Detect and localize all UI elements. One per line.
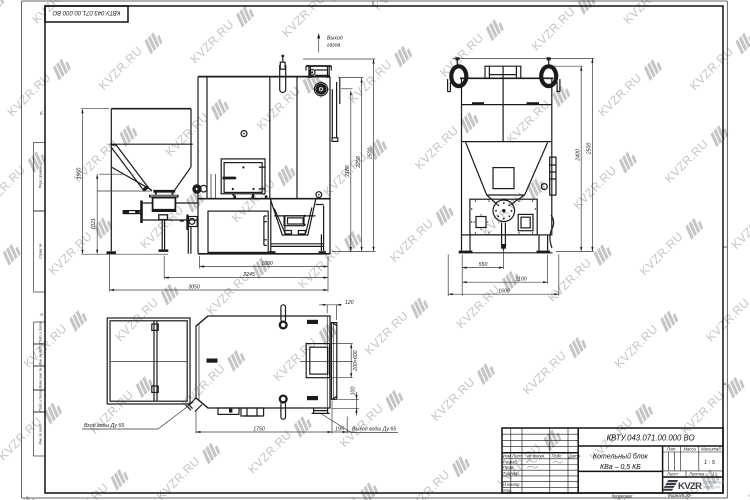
svg-text:KVZR.RU: KVZR.RU: [312, 494, 361, 500]
svg-text:Масштаб: Масштаб: [701, 447, 721, 452]
svg-text:100: 100: [351, 387, 357, 396]
svg-text:KVZR.RU: KVZR.RU: [678, 388, 727, 437]
svg-text:2245: 2245: [242, 272, 255, 278]
svg-text:KVZR.RU: KVZR.RU: [0, 163, 28, 212]
svg-text:KVZR.RU: KVZR.RU: [728, 203, 750, 252]
svg-text:КВТУ.043.071.00.000 ВО: КВТУ.043.071.00.000 ВО: [607, 433, 695, 442]
svg-text:KVZR.RU: KVZR.RU: [412, 123, 461, 172]
svg-text:KVZR.RU: KVZR.RU: [163, 110, 212, 159]
svg-text:KVZR.RU: KVZR.RU: [745, 454, 750, 500]
svg-text:Вход воды Ду 65: Вход воды Ду 65: [84, 423, 124, 429]
svg-text:195: 195: [335, 426, 344, 432]
svg-text:Масса: Масса: [684, 447, 697, 452]
svg-text:КВа – 0,5 КБ: КВа – 0,5 КБ: [600, 464, 641, 471]
svg-text:KVZR.RU: KVZR.RU: [346, 57, 395, 106]
svg-text:Подп. и дата: Подп. и дата: [38, 322, 42, 343]
svg-text:KVZR.RU: KVZR.RU: [403, 467, 452, 500]
svg-text:KVZR.RU: KVZR.RU: [570, 163, 619, 212]
svg-text:KVZR.RU: KVZR.RU: [87, 388, 136, 437]
svg-text:А: А: [723, 382, 727, 386]
svg-text:Разраб.: Разраб.: [503, 459, 518, 464]
svg-text:Н.контр.: Н.контр.: [503, 482, 521, 487]
svg-text:Инв. № дубл.: Инв. № дубл.: [38, 345, 42, 366]
svg-text:KVZR.RU: KVZR.RU: [621, 0, 670, 27]
svg-text:KVZR.RU: KVZR.RU: [96, 44, 145, 93]
svg-text:KVZR.RU: KVZR.RU: [371, 0, 420, 14]
svg-text:200×600: 200×600: [353, 350, 359, 371]
svg-text:KVZR.RU: KVZR.RU: [612, 322, 661, 371]
svg-text:KVZR.RU: KVZR.RU: [387, 216, 436, 265]
svg-text:2186: 2186: [345, 165, 351, 178]
svg-text:1021: 1021: [91, 218, 97, 230]
svg-text:KVZR.RU: KVZR.RU: [637, 229, 686, 278]
svg-text:КУЗНЕЧНЫЙ: КУЗНЕЧНЫЙ: [703, 481, 725, 485]
svg-text:Выход воды Ду 65: Выход воды Ду 65: [352, 427, 396, 433]
svg-text:Копировал: Копировал: [612, 493, 633, 498]
svg-text:ЗАВОД РУ: ЗАВОД РУ: [703, 485, 720, 489]
svg-text:KVZR.RU: KVZR.RU: [454, 282, 503, 331]
svg-text:KVZR.RU: KVZR.RU: [595, 70, 644, 119]
svg-text:Лист: Лист: [511, 453, 523, 458]
svg-text:Пров.: Пров.: [503, 465, 514, 470]
svg-text:KVZR.RU: KVZR.RU: [270, 335, 319, 384]
svg-text:Формат А2: Формат А2: [668, 493, 692, 498]
svg-text:1600: 1600: [498, 289, 510, 295]
svg-text:б: б: [40, 111, 43, 116]
svg-text:KVZR.RU: KVZR.RU: [362, 308, 411, 357]
svg-text:KVZR.RU: KVZR.RU: [529, 4, 578, 53]
svg-text:2500: 2500: [368, 148, 374, 161]
svg-text:Дата: Дата: [568, 453, 581, 458]
svg-text:1750: 1750: [253, 426, 265, 432]
svg-text:КВТУ.043.071.00.000 ВО: КВТУ.043.071.00.000 ВО: [52, 9, 120, 15]
svg-text:2500: 2500: [587, 143, 593, 156]
svg-text:газов: газов: [327, 43, 341, 49]
svg-text:KVZR.RU: KVZR.RU: [429, 375, 478, 424]
svg-text:KVZR.RU: KVZR.RU: [188, 17, 237, 66]
svg-text:Лист: Лист: [666, 472, 678, 477]
svg-text:№ докум.: № докум.: [527, 453, 545, 458]
svg-text:3050: 3050: [188, 284, 200, 290]
svg-text:KVZR.RU: KVZR.RU: [687, 44, 736, 93]
svg-text:Инв. № подл.: Инв. № подл.: [38, 423, 42, 444]
svg-text:KVZR.RU: KVZR.RU: [437, 31, 486, 80]
svg-text:1600: 1600: [261, 261, 273, 267]
svg-text:Листов: Листов: [688, 472, 705, 477]
svg-text:1 : 5: 1 : 5: [704, 460, 716, 466]
svg-text:KVZR.RU: KVZR.RU: [703, 295, 750, 344]
svg-text:550: 550: [479, 262, 488, 268]
svg-text:KVZR.RU: KVZR.RU: [520, 348, 569, 397]
svg-text:А: А: [39, 312, 43, 317]
svg-text:KVZR.RU: KVZR.RU: [0, 255, 3, 304]
svg-text:KVZR.RU: KVZR.RU: [712, 0, 750, 1]
svg-text:Взам. инв. №: Взам. инв. №: [38, 367, 42, 388]
svg-text:KVZR.RU: KVZR.RU: [662, 137, 711, 186]
svg-text:Справ. №: Справ. №: [38, 243, 42, 259]
svg-text:1100: 1100: [515, 277, 526, 283]
svg-text:KVZR.RU: KVZR.RU: [545, 256, 594, 305]
svg-text:KVZR.RU: KVZR.RU: [245, 427, 294, 476]
svg-text:KVZR.RU: KVZR.RU: [179, 361, 228, 410]
svg-text:120: 120: [345, 300, 354, 306]
svg-text:Лит.: Лит.: [666, 447, 677, 452]
svg-text:Т.контр.: Т.контр.: [503, 471, 520, 476]
svg-text:Подп.: Подп.: [552, 453, 563, 458]
svg-text:2250: 2250: [356, 156, 362, 169]
svg-text:Изм: Изм: [503, 453, 511, 458]
svg-text:Подп. и дата: Подп. и дата: [38, 390, 42, 411]
svg-text:KVZR.RU: KVZR.RU: [4, 70, 53, 119]
svg-text:Перв. примен.: Перв. примен.: [38, 166, 42, 189]
svg-text:2400: 2400: [575, 149, 581, 162]
svg-text:KVZR.RU: KVZR.RU: [62, 480, 111, 500]
svg-text:KVZR: KVZR: [678, 481, 702, 492]
svg-text:Утв.: Утв.: [503, 488, 513, 493]
svg-text:1: 1: [712, 472, 714, 477]
svg-text:KVZR.RU: KVZR.RU: [254, 83, 303, 132]
svg-text:Котельный блок: Котельный блок: [593, 453, 649, 461]
svg-text:1900: 1900: [77, 168, 83, 180]
svg-text:KVZR.RU: KVZR.RU: [46, 229, 95, 278]
svg-text:Выход: Выход: [327, 36, 343, 42]
